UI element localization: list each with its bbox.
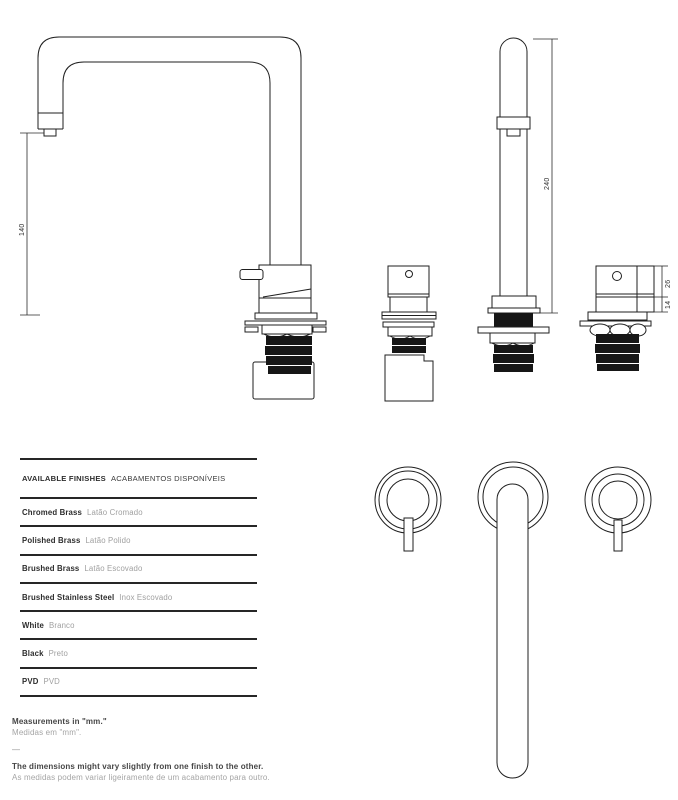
spout-column <box>500 38 527 296</box>
spout-outline <box>38 37 301 265</box>
finish-row-pvd: PVD PVD <box>20 669 257 697</box>
spec-sheet-page: 140 <box>0 0 678 800</box>
measurements-note-pt: Medidas em "mm". <box>12 727 432 738</box>
dimension-label-14: 14 <box>665 301 672 309</box>
header-en: AVAILABLE FINISHES <box>22 474 106 483</box>
finish-en: Black <box>22 649 44 658</box>
finish-en: Polished Brass <box>22 536 80 545</box>
finish-row-polished-brass: Polished Brass Latão Polido <box>20 527 257 555</box>
spout-outlet-band <box>497 117 530 129</box>
finishes-table: AVAILABLE FINISHES ACABAMENTOS DISPONÍVE… <box>20 458 257 697</box>
faucet-front-view-drawing: 240 <box>468 25 570 385</box>
deck-mount-hardware <box>478 296 549 372</box>
faucet-side-view-drawing: 140 <box>0 20 340 405</box>
valve-cartridge-side-drawing <box>373 256 443 406</box>
finish-pt: PVD <box>43 677 59 686</box>
footer-notes: Measurements in "mm." Medidas em "mm". —… <box>12 716 432 783</box>
finish-pt: Latão Escovado <box>84 564 142 573</box>
finish-row-white: White Branco <box>20 612 257 640</box>
spout-top-view-center <box>478 462 548 778</box>
dimension-label-140: 140 <box>19 223 26 236</box>
valve-top-view-right <box>585 467 651 551</box>
dimension-label-240: 240 <box>544 177 551 190</box>
valve-body-housing <box>385 355 433 401</box>
mixer-body <box>240 265 311 313</box>
finish-pt: Branco <box>49 621 75 630</box>
finish-en: PVD <box>22 677 38 686</box>
threaded-shank <box>392 338 426 353</box>
spout-tube <box>497 484 528 778</box>
deck-mount-hardware <box>245 313 326 399</box>
finish-pt: Preto <box>49 649 68 658</box>
finish-row-brushed-stainless-steel: Brushed Stainless Steel Inox Escovado <box>20 584 257 612</box>
measurements-note-en: Measurements in "mm." <box>12 716 432 727</box>
valve-handle <box>596 266 654 312</box>
handle-stick <box>614 520 622 551</box>
threaded-shank <box>265 336 312 374</box>
finish-pt: Latão Cromado <box>87 508 143 517</box>
handle-stick <box>404 518 413 551</box>
finish-en: Chromed Brass <box>22 508 82 517</box>
finishes-table-header: AVAILABLE FINISHES ACABAMENTOS DISPONÍVE… <box>20 460 257 499</box>
finish-en: Brushed Stainless Steel <box>22 593 114 602</box>
valve-top-view-left <box>375 467 441 551</box>
variance-note-en: The dimensions might vary slightly from … <box>12 761 432 772</box>
finish-en: Brushed Brass <box>22 564 79 573</box>
variance-note-pt: As medidas podem variar ligeiramente de … <box>12 772 432 783</box>
finish-row-brushed-brass: Brushed Brass Latão Escovado <box>20 556 257 584</box>
threaded-shank <box>595 334 640 371</box>
finish-pt: Latão Polido <box>85 536 130 545</box>
dimension-line-140: 140 <box>19 133 44 315</box>
finish-en: White <box>22 621 44 630</box>
finish-row-black: Black Preto <box>20 640 257 668</box>
finish-pt: Inox Escovado <box>119 593 172 602</box>
aerator-tip <box>44 129 56 136</box>
threaded-shank <box>493 345 534 372</box>
header-pt: ACABAMENTOS DISPONÍVEIS <box>111 474 225 483</box>
finish-row-chromed-brass: Chromed Brass Latão Cromado <box>20 499 257 527</box>
lever-handle <box>240 270 263 280</box>
notes-divider: — <box>12 745 432 754</box>
dimension-line-240: 240 <box>533 39 558 313</box>
dimension-label-26: 26 <box>665 280 672 288</box>
valve-cartridge-dimensioned-drawing: 26 14 <box>578 256 678 386</box>
